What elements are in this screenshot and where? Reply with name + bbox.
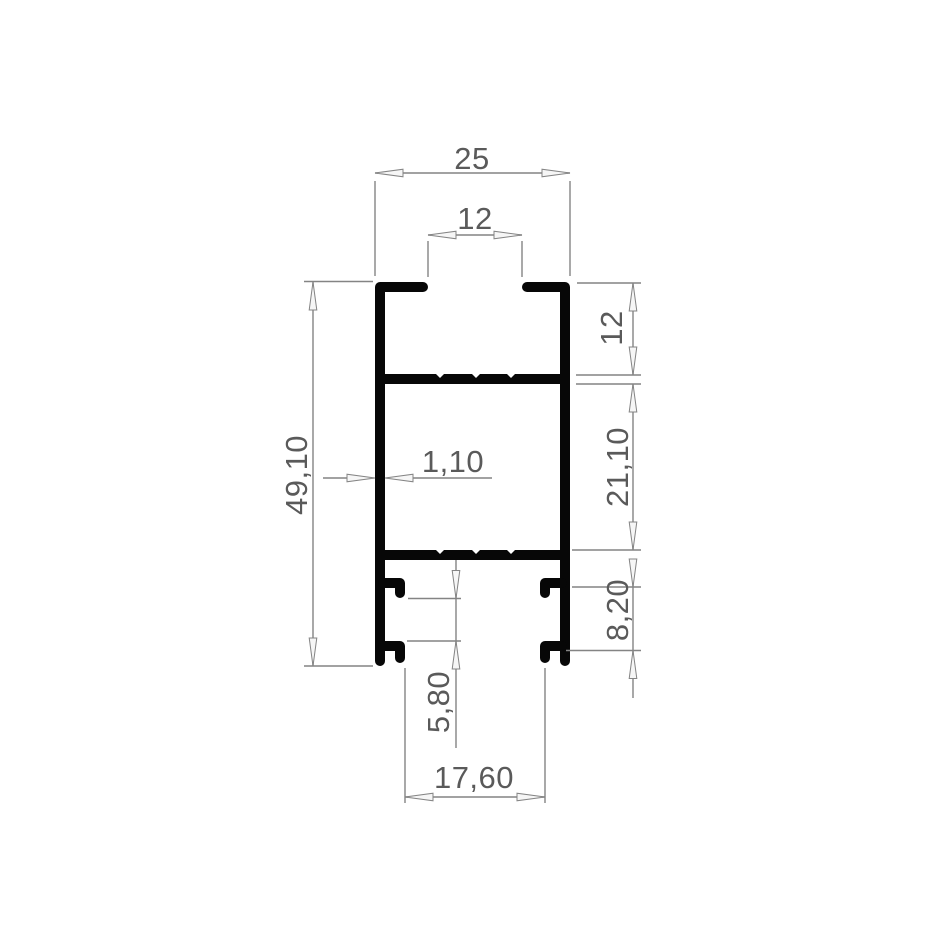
profile-hook-lower-left: [383, 646, 400, 658]
dim-upper-chamber-label: 12: [594, 310, 629, 345]
arrow: [629, 384, 637, 412]
profile-left-flange-and-wall: [380, 287, 423, 661]
arrow: [517, 793, 545, 801]
arrow: [452, 571, 460, 599]
arrow: [385, 474, 413, 482]
arrow: [309, 638, 317, 666]
profile-hook-upper-left: [383, 583, 400, 593]
dim-lower-section-label: 8,20: [600, 579, 635, 641]
arrow: [452, 641, 460, 669]
technical-drawing: 25 12 49,10 12 21,10 8,20 5,80 1,10 17,6…: [0, 0, 950, 950]
arrow: [542, 169, 570, 177]
dim-middle-chamber-label: 21,10: [600, 427, 635, 507]
arrow: [309, 282, 317, 310]
dimension-labels: 25 12 49,10 12 21,10 8,20 5,80 1,10 17,6…: [279, 141, 635, 795]
profile-hook-lower-right: [545, 646, 562, 658]
dim-hook-spacing-label: 5,80: [421, 671, 456, 733]
arrow: [629, 522, 637, 550]
dimension-arrows: [309, 169, 637, 801]
arrow: [428, 231, 456, 239]
arrow: [405, 793, 433, 801]
arrow: [494, 231, 522, 239]
arrow: [347, 474, 375, 482]
dim-base-width-label: 17,60: [434, 760, 514, 795]
arrow: [629, 347, 637, 375]
profile-right-flange-and-wall: [527, 287, 565, 661]
dim-slot-width-label: 12: [457, 201, 492, 236]
dim-overall-width-label: 25: [454, 141, 489, 176]
dim-wall-thickness-label: 1,10: [422, 444, 484, 479]
dimension-lines: [304, 173, 641, 803]
dim-overall-height-label: 49,10: [279, 435, 314, 515]
drawing-canvas: 25 12 49,10 12 21,10 8,20 5,80 1,10 17,6…: [0, 0, 950, 950]
arrow: [375, 169, 403, 177]
profile-hook-upper-right: [545, 583, 562, 593]
arrow: [629, 283, 637, 311]
arrow: [629, 651, 637, 679]
